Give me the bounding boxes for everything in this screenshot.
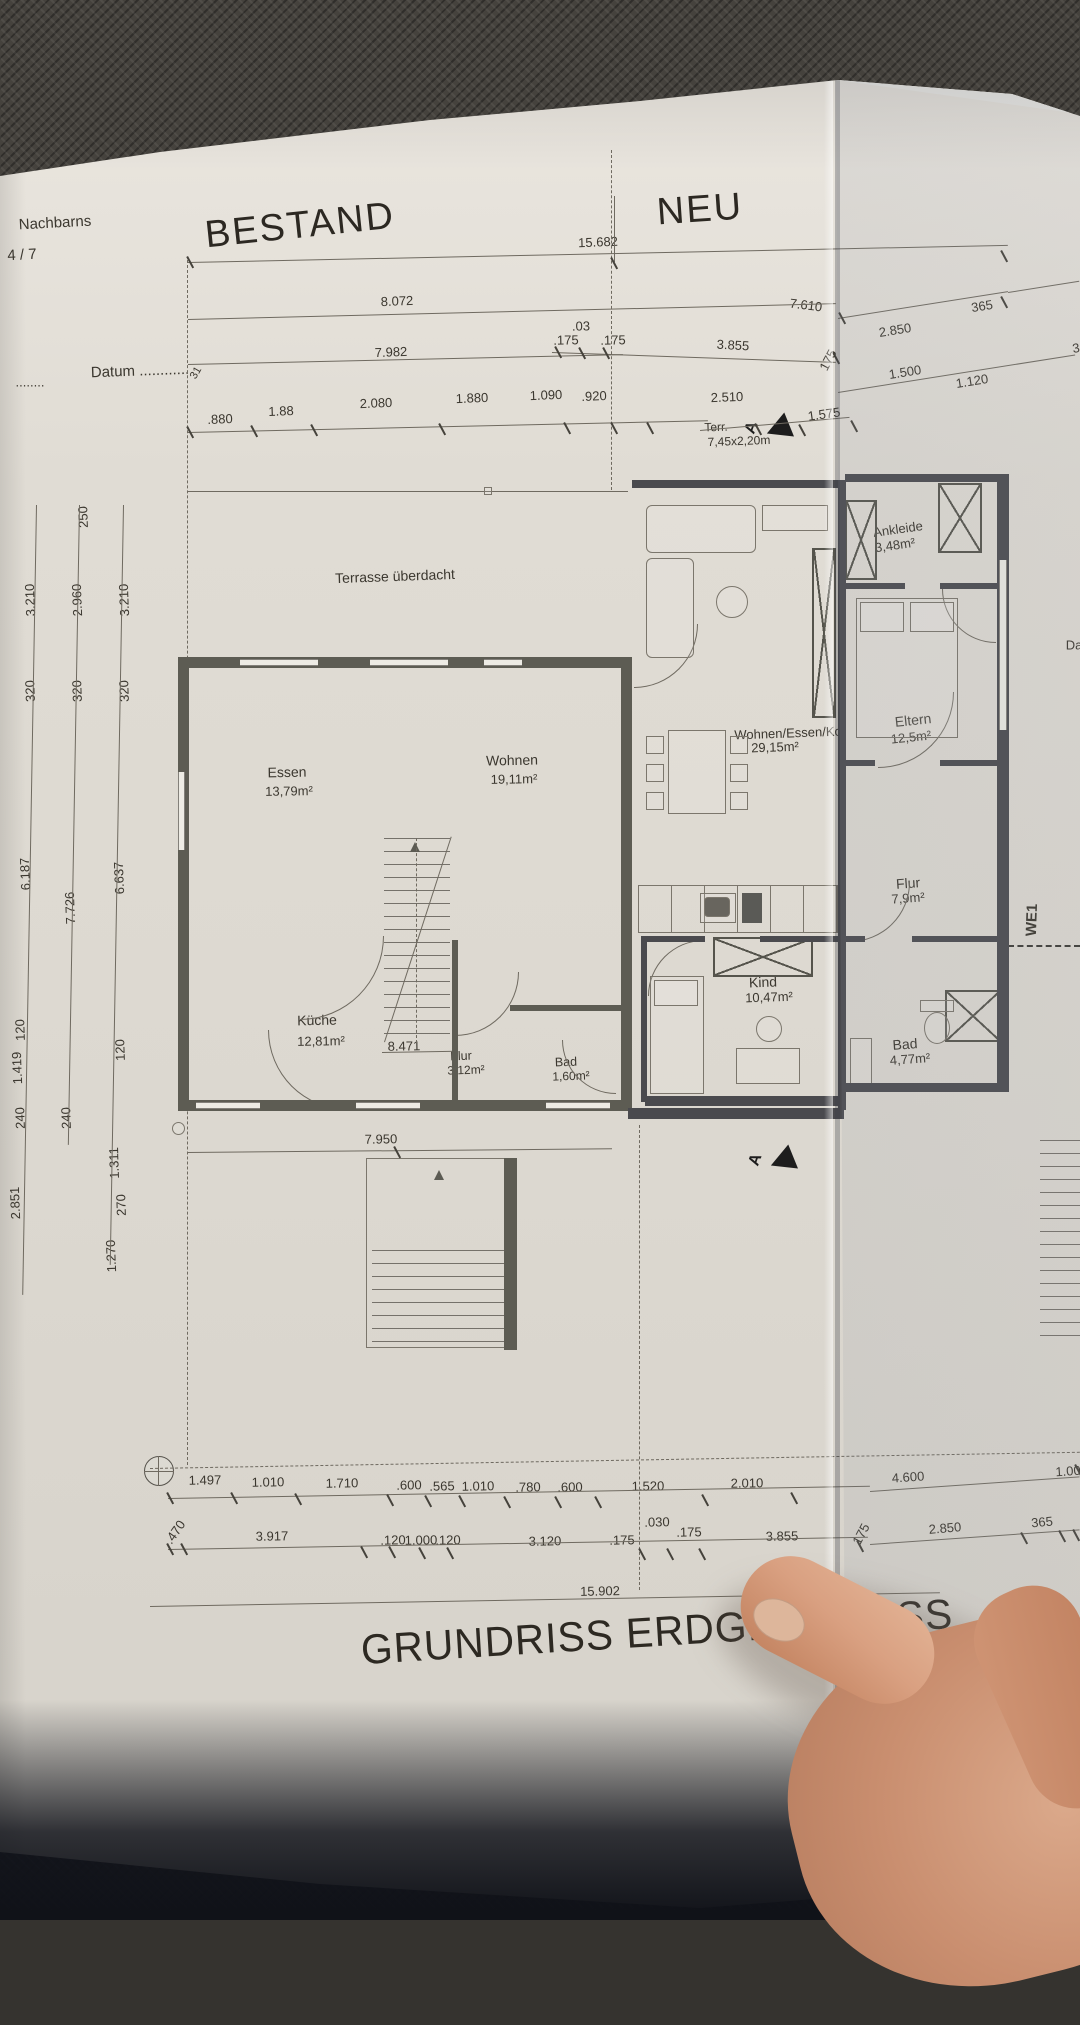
sideboard — [762, 505, 828, 531]
plan-line — [188, 420, 708, 433]
neu-label: NEU — [655, 186, 744, 235]
window — [999, 560, 1007, 730]
kitchen-island-hatched — [713, 937, 813, 977]
neighbor-stairs — [1040, 1140, 1080, 1348]
reference-circle — [172, 1122, 185, 1135]
dimension-tick — [424, 1495, 432, 1507]
door-arc — [268, 1030, 348, 1110]
dimension-tick — [666, 1548, 674, 1560]
dimension-tick — [798, 424, 806, 436]
window — [178, 772, 185, 850]
wall — [628, 1108, 844, 1119]
dim: 320 — [69, 680, 85, 702]
plan-line — [22, 505, 37, 1295]
window — [240, 659, 318, 666]
dim: 1.710 — [326, 1475, 359, 1491]
chair — [646, 764, 664, 782]
paper-fold-highlight — [824, 80, 833, 1890]
dim: 3.210 — [116, 583, 132, 616]
wall — [178, 657, 189, 1111]
wall — [845, 936, 865, 942]
room-wohnen-area: 19,11m² — [491, 771, 538, 787]
room-terrasse: Terrasse überdacht — [335, 566, 455, 586]
desk-chair — [756, 1016, 782, 1042]
dimension-tick — [360, 1546, 368, 1558]
dimension-tick — [446, 1547, 454, 1559]
wall — [641, 936, 647, 1102]
dim: 6.637 — [111, 861, 127, 894]
floorplan-drawing: BESTAND NEU Nachbarns 4 / 7 Datum ......… — [0, 0, 1080, 1920]
dim: 1.520 — [632, 1478, 665, 1494]
dim: 320 — [22, 680, 38, 702]
dim: .600 — [396, 1477, 422, 1492]
wall — [940, 760, 1003, 766]
room-bad-neu-area: 4,77m² — [889, 1050, 930, 1068]
dim: 7.950 — [365, 1131, 398, 1147]
pillow — [654, 980, 698, 1006]
stove — [742, 893, 762, 923]
nachbarns-label: Nachbarns — [18, 213, 91, 234]
wall — [645, 1096, 841, 1106]
door-arc — [850, 882, 910, 942]
dim: 1.88 — [268, 403, 294, 419]
room-wek-area: 29,15m² — [751, 739, 799, 756]
wall — [484, 487, 492, 495]
plan-line — [1008, 945, 1080, 947]
chair — [730, 736, 748, 754]
sofa — [646, 558, 694, 658]
stair-direction-arrow — [434, 1170, 444, 1180]
dimension-tick — [790, 1492, 798, 1504]
dimension-tick — [1058, 1530, 1066, 1542]
dimension-tick — [1000, 296, 1008, 308]
bestand-label: BESTAND — [203, 195, 397, 258]
dim: .175 — [553, 332, 579, 347]
dim-cut: 3 — [1071, 340, 1080, 356]
dim: .030 — [644, 1514, 670, 1529]
dim: 2.510 — [710, 389, 743, 405]
dim: 8.072 — [380, 293, 413, 309]
pillow — [860, 602, 904, 632]
wall — [845, 760, 875, 766]
dim-total-top: 15.682 — [578, 234, 618, 250]
dim: 365 — [1031, 1514, 1054, 1531]
door-arc — [455, 972, 519, 1036]
window — [196, 1102, 260, 1109]
dim: 1.497 — [189, 1472, 222, 1488]
wall — [845, 583, 905, 589]
plan-line — [639, 1125, 640, 1590]
dim: 1.090 — [529, 387, 562, 403]
plan-line — [614, 196, 615, 262]
plan-line — [188, 1148, 612, 1153]
dim: 3.855 — [716, 337, 749, 354]
dim: 3.120 — [529, 1533, 562, 1549]
wall — [621, 657, 632, 1111]
section-marker-a: A — [746, 1151, 767, 1168]
dim: 4.600 — [891, 1468, 925, 1485]
dim: 1.120 — [955, 371, 989, 391]
dimension-tick — [701, 1494, 709, 1506]
dim: 240 — [58, 1107, 74, 1129]
dim: 320 — [116, 680, 132, 702]
plan-line — [150, 1452, 1080, 1469]
dim: 270 — [113, 1194, 129, 1216]
dining-table — [668, 730, 726, 814]
dim: .470 — [162, 1517, 189, 1546]
unit-we1-label: WE1 — [1023, 903, 1041, 936]
dimension-tick — [1072, 1529, 1080, 1541]
dim: 3.210 — [22, 583, 38, 616]
pillow — [910, 602, 954, 632]
dim: .600 — [557, 1479, 583, 1494]
dim: .880 — [207, 411, 233, 427]
terrace-note-size: 7,45x2,20m — [707, 433, 770, 449]
room-essen-area: 13,79m² — [265, 783, 313, 799]
wall — [1003, 860, 1009, 1084]
dim-total-bottom: 15.902 — [580, 1583, 620, 1599]
wall — [645, 936, 705, 942]
section-marker-triangle — [766, 1144, 798, 1177]
kitchen-counter — [638, 885, 838, 933]
dimension-tick — [503, 1496, 511, 1508]
datum-label: Datum ............ — [91, 361, 190, 381]
dim: .175 — [676, 1524, 702, 1539]
window — [546, 1102, 610, 1109]
dim: 250 — [75, 506, 91, 528]
chair — [646, 792, 664, 810]
floorplan-sheet: BESTAND NEU Nachbarns 4 / 7 Datum ......… — [0, 0, 1080, 1920]
dim: 1.880 — [455, 390, 488, 406]
dim: 120 — [12, 1019, 28, 1041]
sofa — [646, 505, 756, 553]
wall — [845, 474, 1003, 482]
chair — [730, 764, 748, 782]
plan-line — [144, 1471, 174, 1472]
dimension-tick — [594, 1496, 602, 1508]
wall — [940, 583, 1003, 589]
dimension-tick — [388, 1546, 396, 1558]
window — [370, 659, 448, 666]
toilet-tank — [920, 1000, 954, 1012]
dim: 365 — [970, 297, 994, 315]
dimension-tick — [230, 1492, 238, 1504]
dim: 2.851 — [7, 1186, 23, 1219]
stair-direction-arrow — [410, 842, 420, 852]
plan-line — [1008, 281, 1079, 293]
wall — [845, 1083, 1003, 1092]
fabric-bottom-shadow — [0, 1700, 1080, 1920]
dimension-tick — [386, 1494, 394, 1506]
plan-line — [188, 303, 836, 320]
dimension-tick — [554, 1496, 562, 1508]
closet-hatched — [938, 483, 982, 553]
door-arc — [562, 1040, 616, 1094]
wall — [632, 480, 838, 488]
dimension-tick — [418, 1547, 426, 1559]
sink-basin — [704, 897, 730, 917]
cut-text-right-edge: Da — [1066, 638, 1080, 653]
dim: 1.311 — [106, 1147, 122, 1179]
plan-line — [416, 838, 417, 1043]
plan-line — [552, 352, 836, 363]
dim: .120 — [435, 1532, 461, 1547]
plan-line — [188, 491, 628, 492]
plan-line — [158, 1456, 159, 1486]
window — [484, 659, 522, 666]
desk — [736, 1048, 800, 1084]
coffee-table — [716, 586, 748, 618]
dim: .565 — [429, 1478, 455, 1493]
dimension-tick — [646, 422, 654, 434]
dimension-tick — [438, 423, 446, 435]
dimension-tick — [698, 1548, 706, 1560]
window — [356, 1102, 420, 1109]
door-arc — [300, 936, 384, 1020]
bath-sink — [850, 1038, 872, 1084]
paper-fold-crease — [835, 80, 840, 1892]
dim: 1.419 — [9, 1051, 25, 1084]
dim: 2.850 — [928, 1519, 962, 1537]
dim: 7.726 — [62, 891, 78, 924]
room-kind-area: 10,47m² — [745, 989, 793, 1006]
dotted-line: ........ — [16, 375, 45, 390]
toilet-bowl — [924, 1012, 950, 1044]
dim: .920 — [581, 388, 607, 404]
room-wohnen: Wohnen — [486, 752, 538, 769]
dim: 2.850 — [878, 320, 912, 340]
stair-wall — [504, 1158, 517, 1350]
chair — [730, 792, 748, 810]
dim: 2.080 — [359, 395, 392, 411]
dim: 3.917 — [256, 1528, 289, 1544]
wall — [452, 940, 458, 1106]
dimension-tick — [393, 1146, 401, 1158]
shower-hatched — [945, 990, 1001, 1042]
chair — [646, 736, 664, 754]
closet-hatched — [845, 500, 877, 580]
dimension-tick — [850, 420, 858, 432]
wall — [510, 1005, 628, 1011]
plan-line — [611, 150, 612, 490]
dim: 7.982 — [374, 344, 407, 360]
dim: 1.010 — [252, 1474, 285, 1490]
dimension-tick — [1000, 250, 1008, 262]
drawing-title: GRUNDRISS ERDGESCHOSS — [360, 1590, 955, 1674]
room-essen: Essen — [267, 764, 306, 781]
parcel-number: 4 / 7 — [7, 246, 37, 265]
dimension-tick — [458, 1495, 466, 1507]
dim: .175 — [600, 332, 626, 347]
dim: 3.855 — [766, 1528, 799, 1544]
dimension-tick — [310, 424, 318, 436]
exterior-stairs — [372, 1250, 504, 1348]
plan-line — [870, 1529, 1080, 1545]
dim-small: 31 — [188, 365, 205, 382]
wall — [912, 936, 1003, 942]
